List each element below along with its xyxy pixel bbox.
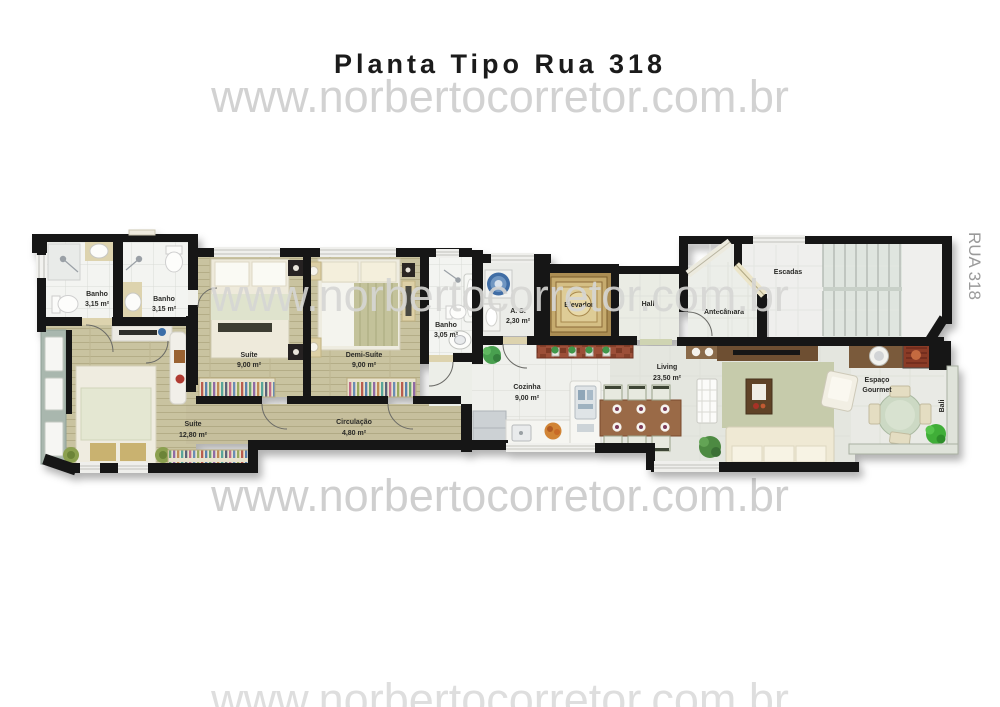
svg-text:Living: Living	[657, 364, 678, 371]
svg-text:Gourmet: Gourmet	[862, 387, 892, 394]
svg-text:Demi-Suíte: Demi-Suíte	[346, 352, 383, 359]
svg-text:www.norbertocorretor.com.br: www.norbertocorretor.com.br	[210, 270, 789, 321]
svg-text:Bali: Bali	[939, 400, 946, 413]
svg-text:www.norbertocorretor.com.br: www.norbertocorretor.com.br	[210, 71, 789, 122]
svg-text:3,15 m²: 3,15 m²	[85, 301, 110, 308]
svg-text:9,00 m²: 9,00 m²	[237, 362, 262, 369]
svg-text:Cozinha: Cozinha	[513, 384, 540, 391]
svg-text:www.norbertocorretor.com.br: www.norbertocorretor.com.br	[210, 470, 789, 521]
svg-text:Banho: Banho	[435, 322, 457, 329]
svg-text:12,80 m²: 12,80 m²	[179, 432, 208, 439]
svg-text:Banho: Banho	[86, 291, 108, 298]
svg-text:3,05 m²: 3,05 m²	[434, 332, 459, 339]
svg-text:Espaço: Espaço	[865, 377, 890, 384]
svg-text:9,00 m²: 9,00 m²	[515, 395, 540, 402]
svg-text:Banho: Banho	[153, 296, 175, 303]
svg-text:Circulação: Circulação	[336, 419, 372, 426]
svg-text:www.norbertocorretor.com.br: www.norbertocorretor.com.br	[210, 674, 789, 707]
svg-text:9,00 m²: 9,00 m²	[352, 362, 377, 369]
svg-text:23,50 m²: 23,50 m²	[653, 375, 682, 382]
svg-text:3,15 m²: 3,15 m²	[152, 306, 177, 313]
svg-text:Suíte: Suíte	[240, 352, 257, 359]
svg-text:4,80 m²: 4,80 m²	[342, 430, 367, 437]
svg-text:Suíte: Suíte	[184, 421, 201, 428]
svg-text:RUA 318: RUA 318	[965, 232, 984, 300]
